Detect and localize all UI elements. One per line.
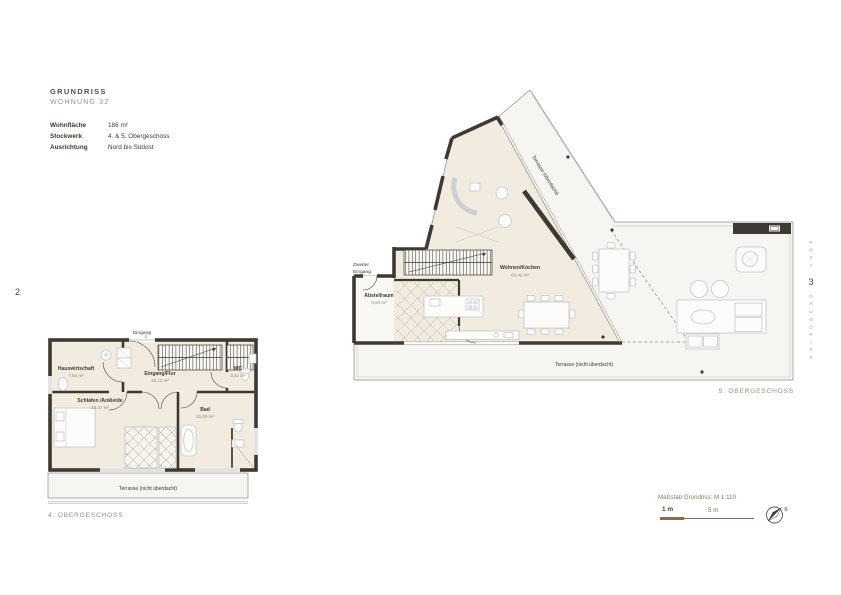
spec-label: Wohnfläche — [50, 120, 108, 131]
spec-value: 186 m² — [108, 120, 128, 131]
spec-label: Stockwerk — [50, 131, 108, 142]
scale-tick-5m: 5 m — [708, 507, 718, 514]
spine-project-name: ROXY — [809, 240, 814, 270]
scale-bar-segment — [660, 517, 684, 520]
room-name-schlafen: Schlafen /Ankleide — [77, 398, 122, 404]
room-name-hauswirtschaft: Hauswirtschaft — [58, 366, 95, 372]
room-name-wohnen-kochen: Wohnen/Kochen — [500, 265, 540, 271]
room-name-abstellraum: Abstellraum — [364, 293, 394, 299]
page-number-right: 3 — [808, 277, 813, 287]
terrace-4og: Terrasse (nicht überdacht) — [48, 473, 248, 503]
room-area-wohnen-kochen: 64,42 m² — [511, 273, 529, 278]
room-name-bad: Bad — [200, 407, 210, 413]
scale-label: Maßstab Grundriss: M 1:110 — [658, 494, 736, 501]
floorplan-5og: Zweiter Eingang Abstellraum 6,94 m² Wohn… — [346, 84, 798, 386]
floorplan-4og: Terrasse (nicht überdacht) — [45, 328, 260, 510]
header: GRUNDRISS WOHNUNG 32 Wohnfläche 186 m² S… — [50, 87, 169, 153]
scale-tick-1m: 1 m — [662, 506, 673, 513]
room-area-wc: 3,51 m² — [230, 373, 246, 378]
second-entrance-label-line1: Zweiter — [353, 262, 369, 268]
second-entrance-label-line2: Eingang — [353, 269, 371, 275]
planter-wall-5og — [733, 223, 791, 234]
page-title: GRUNDRISS — [50, 87, 169, 96]
page-subtitle: WOHNUNG 32 — [50, 99, 169, 106]
second-entrance-vestibule — [354, 276, 394, 343]
room-area-bad: 10,09 m² — [196, 414, 214, 419]
scale-bar-line — [684, 518, 754, 519]
room-area-schlafen: 23,47 m² — [91, 405, 109, 410]
floorplan-page: GRUNDRISS WOHNUNG 32 Wohnfläche 186 m² S… — [0, 0, 841, 595]
room-area-hauswirtschaft: 7,54 m² — [68, 373, 84, 378]
terrace-label-5og: Terrasse (nicht überdacht) — [555, 362, 613, 368]
room-area-flur: 15,13 m² — [151, 378, 169, 383]
caption-5og: 5. OBERGESCHOSS — [700, 388, 794, 395]
spec-value: Nord bis Südost — [108, 142, 153, 153]
spec-row: Stockwerk 4. & 5. Obergeschoss — [50, 131, 169, 142]
north-label: N — [782, 506, 789, 513]
entrance-label: Eingang — [133, 330, 151, 336]
terrace-label-4og: Terrasse (nicht überdacht) — [119, 486, 177, 492]
caption-4og: 4. OBERGESCHOSS — [48, 512, 123, 519]
spine-section-name: GRUNDRISS — [809, 294, 814, 362]
stairs-5og — [404, 250, 492, 275]
glass-front-5og — [404, 341, 519, 345]
right-spine: ROXY 3 GRUNDRISS — [803, 240, 819, 363]
spec-label: Ausrichtung — [50, 142, 108, 153]
spec-row: Wohnfläche 186 m² — [50, 120, 169, 131]
page-number-left: 2 — [15, 287, 20, 297]
spec-value: 4. & 5. Obergeschoss — [108, 131, 169, 142]
room-name-flur: Eingang/Flur — [144, 371, 175, 377]
room-name-wc: WC — [234, 366, 243, 372]
compass-icon: N — [762, 502, 790, 530]
spec-table: Wohnfläche 186 m² Stockwerk 4. & 5. Ober… — [50, 120, 169, 153]
spec-row: Ausrichtung Nord bis Südost — [50, 142, 169, 153]
room-area-abstellraum: 6,94 m² — [371, 300, 387, 305]
